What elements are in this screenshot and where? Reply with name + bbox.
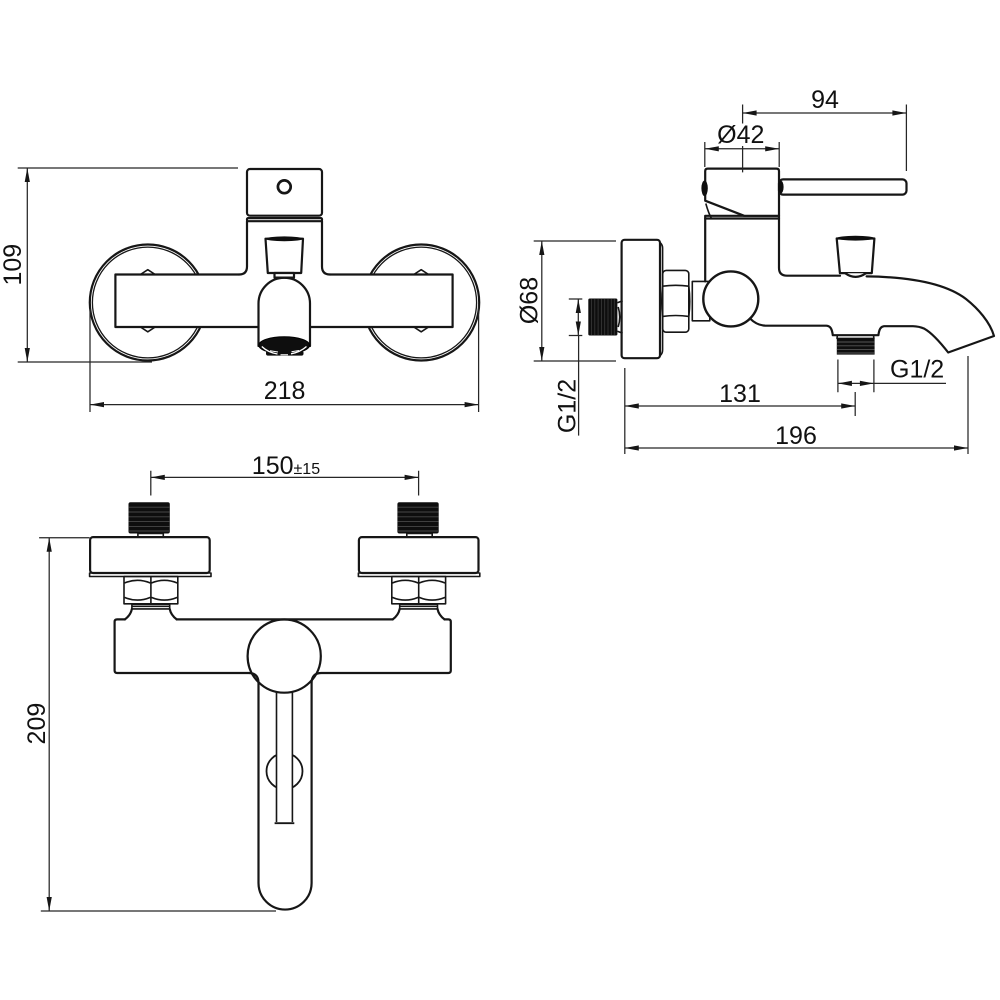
svg-text:131: 131: [719, 380, 761, 408]
svg-text:218: 218: [264, 377, 306, 405]
svg-text:209: 209: [23, 703, 51, 745]
svg-text:94: 94: [811, 86, 839, 114]
svg-text:196: 196: [775, 422, 817, 450]
svg-text:Ø42: Ø42: [717, 121, 764, 149]
svg-text:109: 109: [0, 244, 27, 286]
svg-text:G1/2: G1/2: [553, 379, 581, 433]
svg-text:Ø68: Ø68: [516, 277, 544, 324]
svg-text:G1/2: G1/2: [890, 356, 944, 384]
